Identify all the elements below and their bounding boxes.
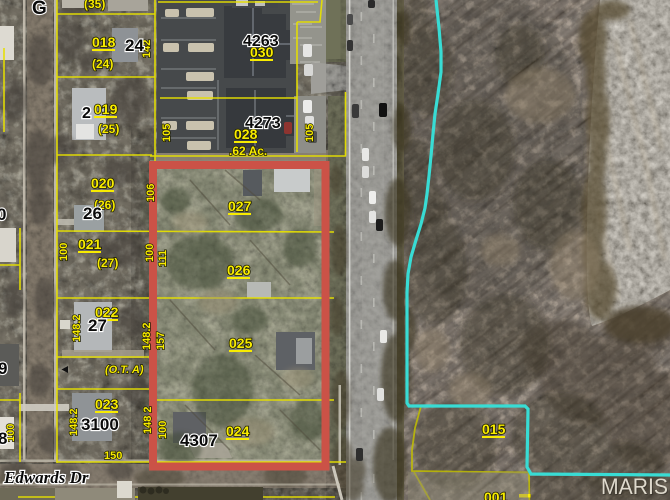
svg-text:26: 26 (83, 204, 102, 223)
svg-text:G: G (32, 0, 47, 19)
svg-text:(24): (24) (92, 57, 113, 71)
svg-text:148 2: 148 2 (142, 406, 154, 434)
svg-text:021: 021 (78, 236, 102, 252)
svg-text:026: 026 (227, 262, 251, 278)
svg-text:24: 24 (125, 36, 144, 55)
svg-text:0: 0 (0, 205, 6, 224)
svg-text:020: 020 (91, 175, 115, 191)
svg-text:100: 100 (157, 421, 169, 439)
svg-text:4307: 4307 (180, 431, 218, 450)
svg-text:024: 024 (226, 423, 250, 439)
svg-text:100: 100 (58, 243, 70, 261)
svg-text:019: 019 (94, 101, 118, 117)
svg-text:MARIS: MARIS (601, 474, 668, 499)
svg-text:148.2: 148.2 (141, 322, 153, 350)
svg-text:157: 157 (155, 332, 167, 350)
svg-text:9: 9 (0, 359, 7, 378)
svg-text:106: 106 (145, 184, 157, 202)
svg-text:001: 001 (484, 489, 508, 500)
svg-text:015: 015 (482, 421, 506, 437)
svg-text:023: 023 (95, 396, 119, 412)
svg-text:4273: 4273 (245, 115, 281, 132)
svg-text:150: 150 (104, 450, 122, 462)
svg-text:018: 018 (92, 34, 116, 50)
svg-text:8: 8 (0, 429, 7, 448)
svg-text:105: 105 (161, 124, 173, 142)
svg-text:105: 105 (304, 124, 316, 142)
svg-text:3100: 3100 (81, 415, 119, 434)
svg-text:(27): (27) (97, 256, 118, 270)
svg-text:27: 27 (88, 316, 107, 335)
svg-text:148.2: 148.2 (68, 408, 80, 436)
svg-text:.62 Ac.: .62 Ac. (229, 144, 267, 158)
svg-text:025: 025 (229, 335, 253, 351)
svg-text:(25): (25) (98, 122, 119, 136)
svg-text:100: 100 (144, 244, 156, 262)
svg-text:(O.T. A): (O.T. A) (105, 364, 144, 376)
svg-text:4263: 4263 (243, 33, 279, 50)
svg-text:2: 2 (82, 105, 91, 122)
svg-text:Edwards Dr: Edwards Dr (3, 468, 89, 487)
svg-text:027: 027 (228, 198, 252, 214)
svg-text:148.2: 148.2 (71, 314, 83, 342)
svg-text:111: 111 (157, 250, 169, 267)
svg-text:(35): (35) (84, 0, 105, 11)
